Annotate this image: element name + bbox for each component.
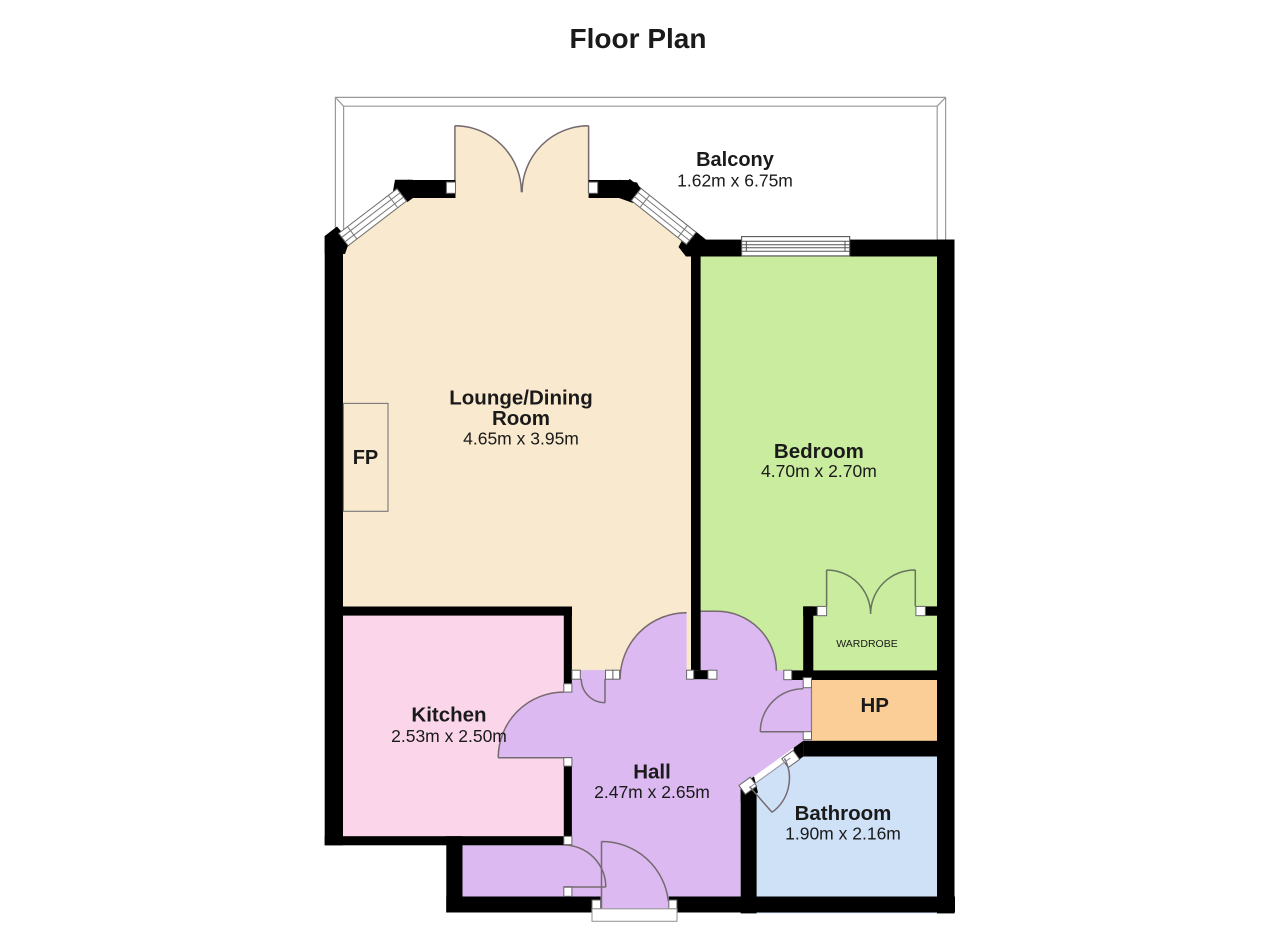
svg-text:WARDROBE: WARDROBE (836, 638, 897, 650)
svg-text:4.70m x 2.70m: 4.70m x 2.70m (761, 461, 877, 481)
svg-text:2.53m x 2.50m: 2.53m x 2.50m (391, 726, 507, 746)
svg-text:Floor Plan: Floor Plan (570, 23, 707, 54)
svg-text:2.47m x 2.65m: 2.47m x 2.65m (594, 782, 710, 802)
svg-text:HP: HP (860, 694, 888, 717)
svg-text:Hall: Hall (633, 761, 671, 784)
svg-text:Bedroom: Bedroom (774, 440, 864, 463)
svg-text:1.62m x 6.75m: 1.62m x 6.75m (677, 171, 793, 191)
svg-text:Kitchen: Kitchen (411, 704, 486, 727)
svg-text:Balcony: Balcony (696, 149, 775, 171)
svg-text:1.90m x 2.16m: 1.90m x 2.16m (785, 824, 901, 844)
svg-text:Room: Room (492, 407, 550, 430)
svg-text:FP: FP (353, 447, 379, 469)
svg-text:4.65m x 3.95m: 4.65m x 3.95m (463, 429, 579, 449)
svg-text:Bathroom: Bathroom (795, 802, 892, 825)
